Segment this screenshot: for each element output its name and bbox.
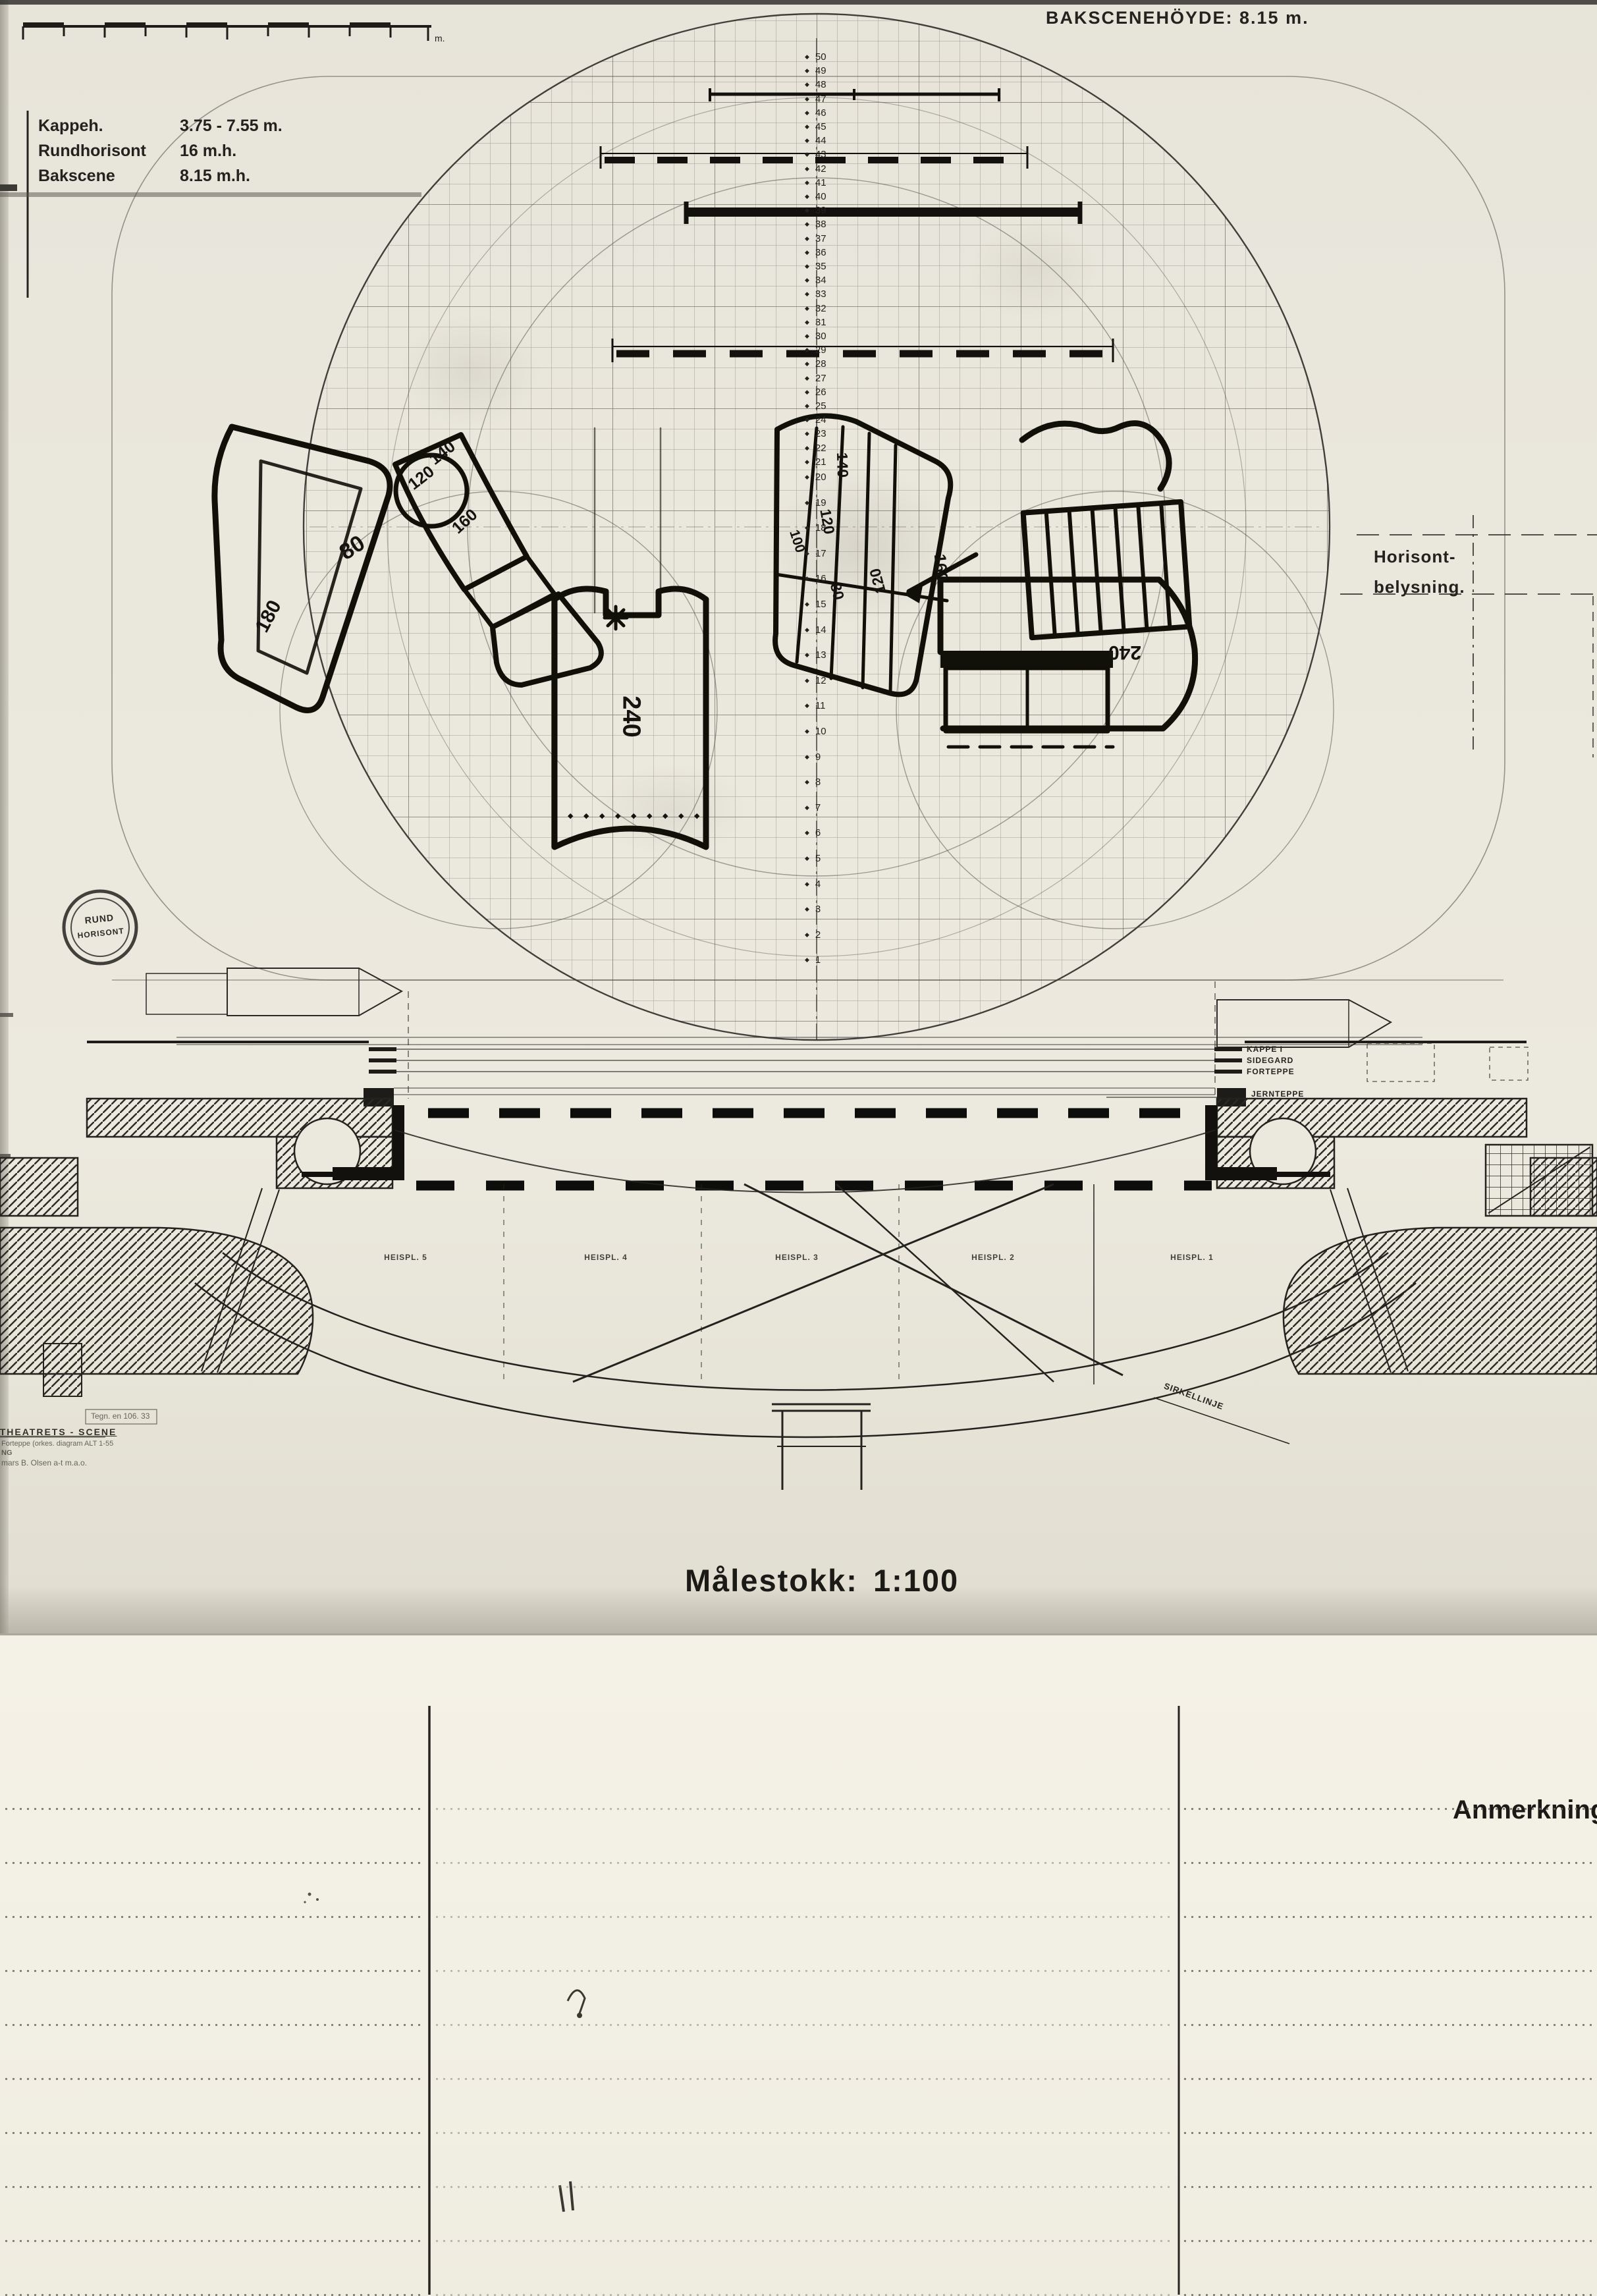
platform-label: HEISPL. 4 [584,1253,628,1262]
centerline-tick: ◆35 [805,261,826,272]
platform-label: HEISPL. 2 [971,1253,1015,1262]
notes-dotted-line [436,1862,1174,1864]
tick-diamond-icon: ◆ [805,360,809,367]
tick-diamond-icon: ◆ [805,346,809,353]
tick-number: 21 [815,456,826,468]
legend-row: Kappeh. 3.75 - 7.55 m. [38,113,283,138]
tick-diamond-icon: ◆ [805,651,809,658]
tick-number: 7 [815,802,821,813]
wagon-number: 240 [617,696,645,737]
tick-diamond-icon: ◆ [805,53,809,60]
tick-diamond-icon: ◆ [805,375,809,381]
centerline-tick: ◆42 [805,163,826,175]
centerline-tick: ◆41 [805,177,826,188]
tick-number: 8 [815,777,821,788]
diamond-dot-icon: ◆ [663,811,668,820]
tick-diamond-icon: ◆ [805,855,809,861]
ruler-unit: m. [435,33,445,43]
title-block-sub: ne - Forteppe (orkes. diagram ALT 1-55 [0,1440,113,1448]
tick-number: 29 [815,344,826,356]
tick-number: 44 [815,135,826,146]
tick-number: 19 [815,497,826,508]
tick-diamond-icon: ◆ [805,881,809,887]
edge-mark [0,184,17,191]
centerline-tick: ◆26 [805,387,826,398]
centerline-tick: ◆48 [805,79,826,90]
notes-dotted-line [5,1916,425,1918]
tick-number: 46 [815,107,826,119]
tick-number: 15 [815,599,826,610]
tick-diamond-icon: ◆ [805,416,809,423]
tick-number: 1 [815,954,821,966]
right-wall [1217,1099,1597,1374]
diamond-dot-icon: ◆ [583,811,589,820]
horizon-lighting-label: Horisont- belysning. [1374,541,1465,602]
curtain-label: KAPPE I [1247,1045,1283,1054]
tick-diamond-icon: ◆ [805,499,809,506]
centerline-tick: ◆22 [805,443,826,454]
tick-diamond-icon: ◆ [805,445,809,451]
tick-diamond-icon: ◆ [805,319,809,325]
legend-value: 8.15 m.h. [180,167,250,186]
centerline-tick: ◆14 [805,624,826,636]
notes-dotted-line [5,2024,425,2026]
title-block-ng: NG [1,1449,13,1457]
tick-diamond-icon: ◆ [805,193,809,200]
tick-number: 48 [815,79,826,90]
tick-number: 49 [815,65,826,76]
centerline-tick: ◆34 [805,275,826,286]
tick-number: 33 [815,288,826,300]
tick-number: 25 [815,400,826,412]
scale-ruler-bar [23,22,431,41]
diamond-dot-icon: ◆ [631,811,636,820]
center-stand [772,1404,871,1490]
centerline-tick: ◆47 [805,94,826,105]
centerline-tick: ◆19 [805,497,826,508]
centerline-tick: ◆45 [805,121,826,132]
tick-number: 45 [815,121,826,132]
notes-dotted-line [5,1862,425,1864]
centerline-tick: ◆10 [805,726,826,737]
tick-diamond-icon: ◆ [805,235,809,242]
tick-number: 17 [815,548,826,559]
notes-dotted-line [436,2024,1174,2026]
edge-mark [0,1013,13,1017]
tick-number: 32 [815,303,826,314]
tick-diamond-icon: ◆ [805,305,809,312]
title-block-sign: mars B. Olsen a-t m.a.o. [1,1458,87,1467]
notes-dotted-line [436,2132,1174,2134]
centerline-tick: ◆31 [805,317,826,328]
tick-number: 4 [815,879,821,890]
tick-diamond-icon: ◆ [805,109,809,116]
platform-label: HEISPL. 5 [384,1253,427,1262]
notes-dotted-line [5,1808,425,1810]
tick-diamond-icon: ◆ [805,249,809,256]
crease-mark [0,192,421,197]
platform-label: HEISPL. 3 [775,1253,819,1262]
tick-number: 41 [815,177,826,188]
notes-dotted-line [1184,1808,1597,1810]
legend-label: Rundhorisont [38,142,180,161]
tick-diamond-icon: ◆ [805,956,809,963]
tick-diamond-icon: ◆ [805,96,809,102]
tick-diamond-icon: ◆ [805,575,809,582]
tick-diamond-icon: ◆ [805,430,809,437]
tick-number: 30 [815,331,826,342]
centerline-tick: ◆5 [805,853,821,864]
tick-number: 42 [815,163,826,175]
centerline-tick: ◆9 [805,752,821,763]
tick-number: 12 [815,675,826,686]
centerline-tick: ◆23 [805,428,826,439]
tick-diamond-icon: ◆ [805,151,809,157]
legend: Kappeh. 3.75 - 7.55 m. Rundhorisont 16 m… [38,113,283,188]
notes-header: Anmerkninger [1453,1795,1597,1825]
centerline-tick: ◆28 [805,358,826,369]
notes-dotted-line [5,2186,425,2188]
tick-diamond-icon: ◆ [805,931,809,938]
tick-diamond-icon: ◆ [805,165,809,172]
notes-dotted-line [1184,2132,1597,2134]
tick-diamond-icon: ◆ [805,290,809,297]
tick-diamond-icon: ◆ [805,524,809,531]
centerline-tick: ◆13 [805,649,826,661]
legend-row: Rundhorisont 16 m.h. [38,138,283,163]
notes-dotted-line [436,2240,1174,2242]
horizon-lighting-line1: Horisont- [1374,541,1465,572]
tick-diamond-icon: ◆ [805,458,809,465]
back-sheet-marks [0,1635,1597,2295]
tick-diamond-icon: ◆ [805,677,809,684]
tick-diamond-icon: ◆ [805,753,809,760]
tick-number: 23 [815,428,826,439]
notes-dotted-line [436,1916,1174,1918]
tick-diamond-icon: ◆ [805,779,809,785]
horizon-lighting-line2: belysning. [1374,572,1465,602]
tick-number: 31 [815,317,826,328]
tick-diamond-icon: ◆ [805,333,809,339]
tick-number: 11 [815,700,826,711]
notes-dotted-line [5,2078,425,2080]
centerline-tick: ◆24 [805,414,826,425]
centerline-tick: ◆7 [805,802,821,813]
stage-plan-drawing [0,0,1597,1635]
tick-number: 5 [815,853,821,864]
tick-number: 36 [815,247,826,258]
diamond-dot-icon: ◆ [599,811,605,820]
curtain-label: JERNTEPPE [1251,1089,1304,1099]
tick-diamond-icon: ◆ [805,829,809,836]
centerline-tick: ◆32 [805,303,826,314]
notes-dotted-line [1184,2078,1597,2080]
platform-label: HEISPL. 1 [1170,1253,1214,1262]
tick-number: 40 [815,191,826,202]
curtain-label: SIDEGARD [1247,1056,1293,1065]
centerline-tick: ◆15 [805,599,826,610]
legend-label: Kappeh. [38,117,180,136]
left-wall [0,1099,392,1396]
centerline-tick: ◆37 [805,233,826,244]
tick-diamond-icon: ◆ [805,67,809,74]
scanned-stage-plan-document: { "doc": { "top_title": "BAKSCENEHÖYDE: … [0,0,1597,2295]
tick-number: 6 [815,827,821,838]
centerline-tick: ◆44 [805,135,826,146]
centerline-tick: ◆12 [805,675,826,686]
tick-diamond-icon: ◆ [805,626,809,633]
centerline-tick: ◆39 [805,205,826,216]
tick-diamond-icon: ◆ [805,906,809,912]
legend-value: 16 m.h. [180,142,236,161]
tick-number: 28 [815,358,826,369]
curtain-label: FORTEPPE [1247,1067,1295,1076]
notes-dotted-line [1184,2024,1597,2026]
tick-diamond-icon: ◆ [805,221,809,227]
tick-number: 14 [815,624,826,636]
centerline-tick: ◆36 [805,247,826,258]
notes-dotted-line [5,2132,425,2134]
tick-diamond-icon: ◆ [805,474,809,480]
tick-diamond-icon: ◆ [805,277,809,283]
tick-diamond-icon: ◆ [805,137,809,144]
tick-number: 38 [815,219,826,230]
wagon-number: 240 [1108,641,1141,663]
tick-number: 20 [815,472,826,483]
tick-diamond-icon: ◆ [805,601,809,607]
centerline-tick: ◆20 [805,472,826,483]
notes-dotted-line [1184,1916,1597,1918]
tick-number: 10 [815,726,826,737]
tick-diamond-icon: ◆ [805,207,809,213]
notes-dotted-line [436,1808,1174,1810]
tick-number: 35 [815,261,826,272]
notes-dotted-line [1184,2240,1597,2242]
title-block-title: NALTHEATRETS - SCENE [0,1427,117,1437]
centerline-tick: ◆43 [805,149,826,160]
tick-diamond-icon: ◆ [805,263,809,269]
stage-section [0,968,1597,1490]
notes-dotted-line [5,1970,425,1972]
tick-number: 34 [815,275,826,286]
centerline-tick: ◆50 [805,51,826,63]
centerline-tick: ◆11 [805,700,826,711]
tick-diamond-icon: ◆ [805,389,809,395]
tick-number: 24 [815,414,826,425]
diamond-dot-icon: ◆ [568,811,573,820]
tick-number: 2 [815,929,821,941]
notes-dotted-line [436,2078,1174,2080]
scale-label: Målestokk: 1:100 [685,1562,959,1599]
diamond-dot-icon: ◆ [647,811,652,820]
centerline-tick: ◆1 [805,954,821,966]
centerline-tick: ◆27 [805,373,826,384]
tick-number: 13 [815,649,826,661]
tick-number: 26 [815,387,826,398]
tick-diamond-icon: ◆ [805,728,809,734]
tick-number: 50 [815,51,826,63]
notes-dotted-line [436,2186,1174,2188]
notes-dotted-line [1184,1862,1597,1864]
centerline-tick: ◆4 [805,879,821,890]
title-block-drawing-no: Tegn. en 106. 33 [91,1411,149,1421]
tick-number: 47 [815,94,826,105]
centerline-tick: ◆16 [805,573,826,584]
diamond-dot-icon: ◆ [678,811,684,820]
centerline-tick: ◆49 [805,65,826,76]
tick-number: 43 [815,149,826,160]
tick-number: 9 [815,752,821,763]
tick-number: 27 [815,373,826,384]
tick-number: 22 [815,443,826,454]
centerline-tick: ◆46 [805,107,826,119]
centerline-tick: ◆2 [805,929,821,941]
centerline-tick: ◆40 [805,191,826,202]
notes-dotted-line [436,1970,1174,1972]
centerline-tick: ◆38 [805,219,826,230]
tick-number: 3 [815,904,821,915]
tick-number: 16 [815,573,826,584]
tick-diamond-icon: ◆ [805,550,809,557]
diamond-dot-icon: ◆ [615,811,620,820]
tick-diamond-icon: ◆ [805,702,809,709]
wagon-number: 140 [833,452,852,478]
centerline-tick: ◆30 [805,331,826,342]
tick-number: 39 [815,205,826,216]
centerline-tick: ◆3 [805,904,821,915]
centerline-tick: ◆29 [805,344,826,356]
backstage-height-title: BAKSCENEHÖYDE: 8.15 m. [1046,8,1309,28]
notes-dotted-line [5,2240,425,2242]
tick-diamond-icon: ◆ [805,123,809,130]
tick-diamond-icon: ◆ [805,804,809,811]
legend-row: Bakscene 8.15 m.h. [38,163,283,188]
wagon-number: 160 [930,553,952,582]
tick-diamond-icon: ◆ [805,81,809,88]
tick-number: 37 [815,233,826,244]
diamond-dot-icon: ◆ [694,811,699,820]
tick-diamond-icon: ◆ [805,402,809,409]
tick-diamond-icon: ◆ [805,179,809,186]
centerline-tick: ◆6 [805,827,821,838]
legend-value: 3.75 - 7.55 m. [180,117,283,136]
centerline-tick: ◆33 [805,288,826,300]
notes-dotted-line [1184,2186,1597,2188]
legend-label: Bakscene [38,167,180,186]
centerline-tick: ◆21 [805,456,826,468]
centerline-tick: ◆25 [805,400,826,412]
centerline-tick: ◆8 [805,777,821,788]
notes-dotted-line [1184,1970,1597,1972]
